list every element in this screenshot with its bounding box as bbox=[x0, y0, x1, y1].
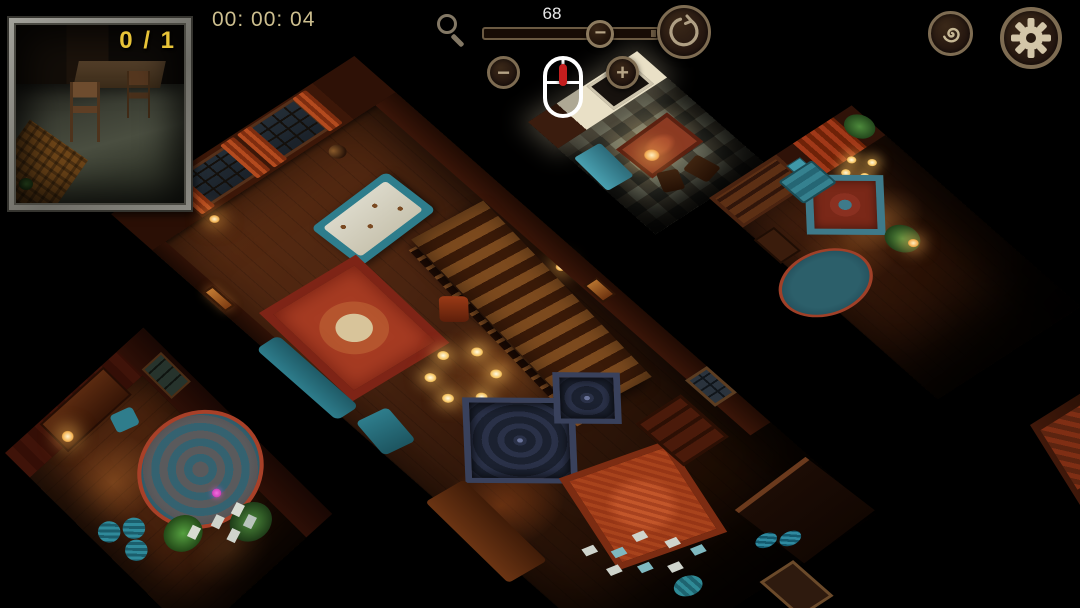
gear-icon bbox=[1009, 16, 1053, 60]
objective-preview-frame[interactable]: 0 / 1 bbox=[7, 16, 193, 212]
timer: 00: 00: 04 bbox=[212, 8, 315, 32]
mouse-scroll-icon bbox=[543, 56, 583, 118]
candle-light bbox=[468, 345, 485, 358]
zoom-slider[interactable]: − bbox=[482, 27, 660, 40]
minus-icon: − bbox=[497, 60, 510, 86]
zoom-in-button[interactable]: + bbox=[606, 56, 639, 89]
slider-endcap bbox=[651, 30, 656, 37]
reset-arrow-icon bbox=[666, 14, 702, 50]
game-screen: 0 / 1 00: 00: 04 68 − − + bbox=[0, 0, 1080, 608]
settings-button[interactable] bbox=[1000, 7, 1062, 69]
spiral-icon bbox=[936, 19, 966, 49]
magnifier-icon bbox=[437, 14, 471, 50]
candle-light bbox=[865, 157, 879, 168]
candle-light bbox=[487, 367, 504, 380]
navy-rug-small[interactable] bbox=[552, 372, 622, 424]
hint-button[interactable] bbox=[928, 11, 973, 56]
candle-light bbox=[845, 155, 859, 166]
found-counter: 0 / 1 bbox=[119, 27, 176, 55]
plus-icon: + bbox=[616, 60, 629, 86]
bedroom[interactable] bbox=[709, 105, 1080, 399]
cutoff-room[interactable] bbox=[1030, 367, 1080, 544]
magnifier-lens bbox=[437, 14, 457, 34]
mouse-wheel-highlight bbox=[559, 64, 567, 86]
magnifier-handle bbox=[450, 33, 464, 47]
zoom-out-button[interactable]: − bbox=[487, 56, 520, 89]
reset-button[interactable] bbox=[657, 5, 711, 59]
red-rug-edge bbox=[1040, 393, 1080, 489]
objective-preview-scene: 0 / 1 bbox=[14, 23, 186, 205]
red-armchair[interactable] bbox=[439, 296, 469, 322]
candle-light bbox=[422, 371, 439, 384]
